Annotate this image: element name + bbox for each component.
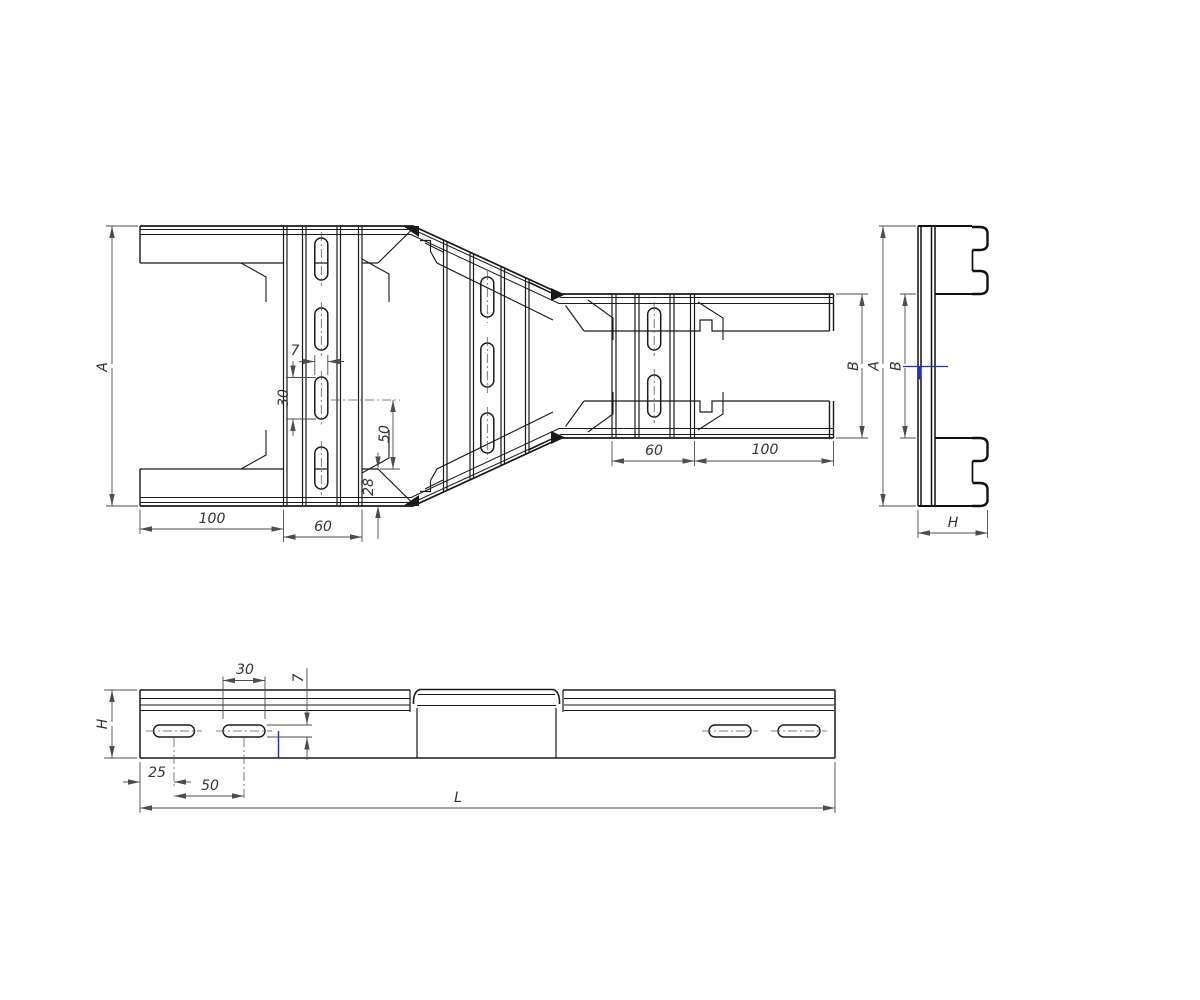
dim-label-7-plan: 7 [291,343,300,359]
ext-lines-30-elev [223,677,265,720]
dim-label-50-plan: 50 [377,425,393,443]
dim-label-b-plan: B [846,361,862,371]
dim-label-b-side: B [889,361,905,371]
elevation-view: H 30 7 25 50 L [95,662,835,813]
plan-narrow-flange-edges [584,320,830,412]
dim-label-60-left: 60 [314,519,332,535]
dim-label-50-elev: 50 [201,778,219,794]
elev-middle-piece-lines [417,695,556,706]
dim-label-l: L [454,790,462,806]
dim-label-28: 28 [361,478,377,496]
elev-piece-ends [410,690,563,758]
dim-label-30-elev: 30 [236,662,254,678]
side-blue-marker [918,367,922,380]
side-view: A B H [867,226,988,538]
plan-left-rung-slots [315,238,328,489]
plan-left-rung [284,226,363,506]
plan-view: A 100 60 7 30 50 [95,226,868,542]
elev-middle-piece-top [413,690,559,705]
technical-drawing-canvas: A 100 60 7 30 50 [0,0,1200,1000]
plan-wide-flange-edges [140,263,378,469]
plan-end-caps [140,226,834,506]
dim-label-100-right: 100 [752,442,779,458]
dim-label-100-left: 100 [199,511,226,527]
elev-bead-lines [140,699,834,711]
side-rolled-beads [972,227,988,506]
dim-label-h-side: H [948,515,959,531]
dim-label-60-right: 60 [645,443,663,459]
elev-outline [140,690,835,758]
drawing-page: A 100 60 7 30 50 [0,0,1200,1000]
side-dimensions: A B H [867,226,988,538]
dim-label-7-elev: 7 [291,673,307,682]
elev-slot-centerlines [146,731,827,800]
dim-label-25: 25 [148,765,166,781]
plan-rail-bead-lines [140,235,834,498]
dim-label-a-plan: A [95,362,111,373]
dim-label-30-plan: 30 [276,389,292,407]
plan-slot-centerlines [321,232,654,495]
wedge [551,431,565,444]
dim-label-a-side: A [867,361,883,372]
plan-outer-rail-edges [140,226,834,506]
plan-rail-thickness-lines [140,230,834,503]
ext-lines-l [140,762,835,813]
wedge [551,288,565,301]
dim-label-h-elev: H [95,718,111,729]
